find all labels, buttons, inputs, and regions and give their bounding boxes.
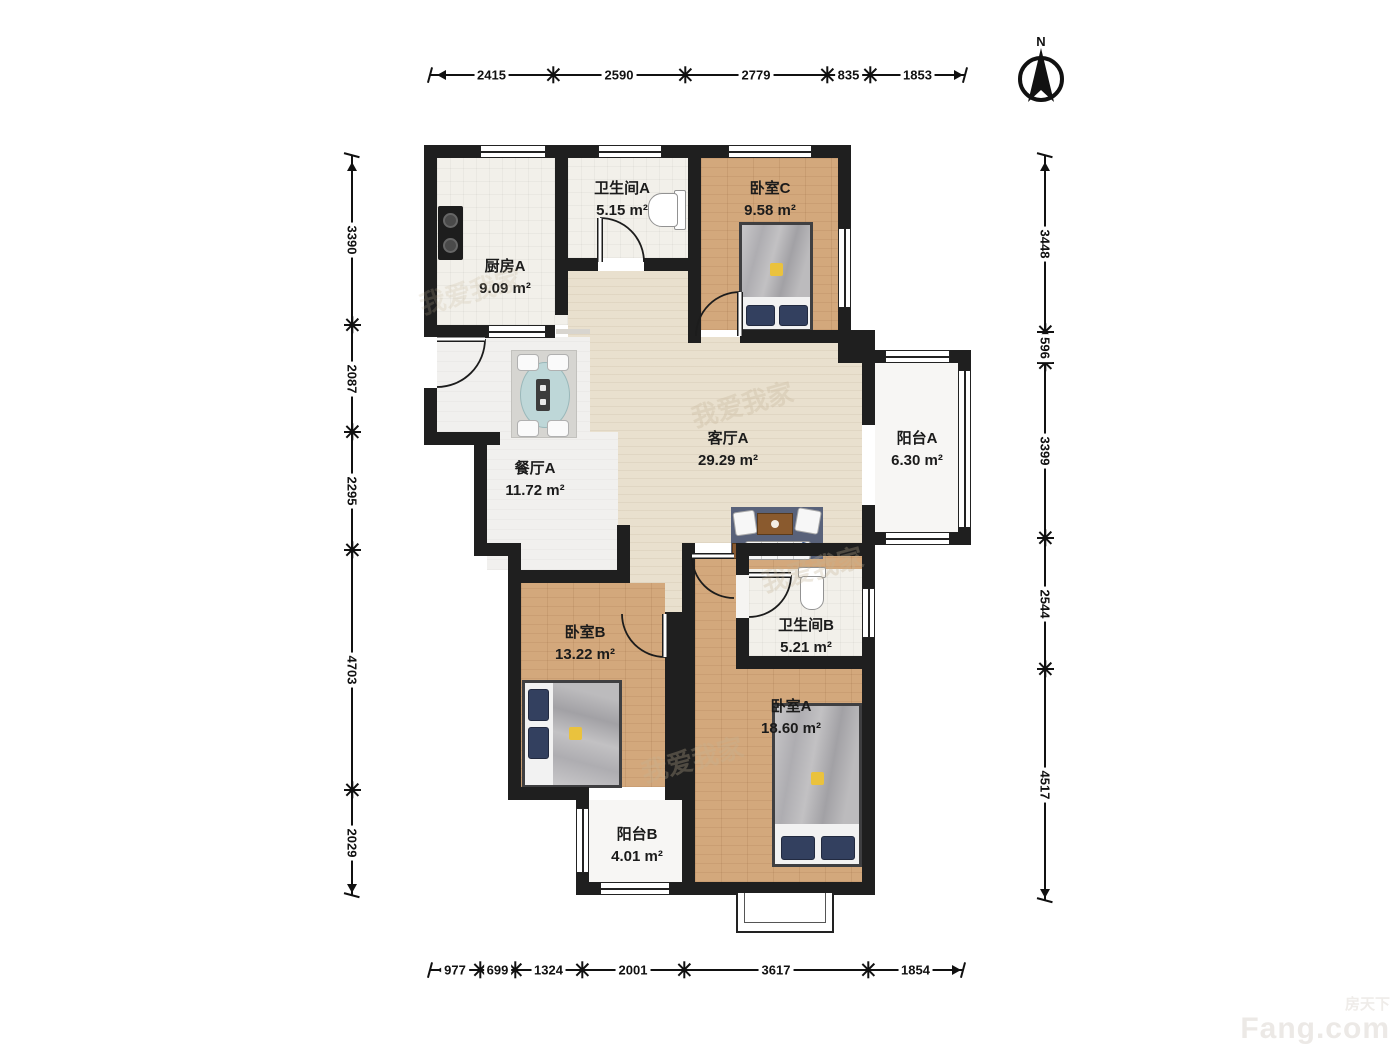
kitchen-doorway [556, 329, 590, 334]
wall-segment [424, 432, 500, 445]
wall-segment [862, 330, 875, 425]
dim-label: 977 [441, 963, 469, 978]
north-compass-icon: N [1006, 32, 1076, 112]
room-area: 9.58 m² [744, 200, 796, 222]
brand-watermark: 房天下 Fang.com [1240, 997, 1390, 1044]
room-label-balcony-a: 阳台A 6.30 m² [891, 428, 943, 472]
wall-segment [740, 330, 851, 343]
dimension-arrow [347, 884, 357, 898]
toilet-a [648, 188, 686, 230]
window [885, 350, 950, 363]
wall-segment [688, 330, 696, 343]
wall-segment [682, 543, 695, 895]
dim-label: 2001 [616, 963, 651, 978]
dim-label: 699 [484, 963, 512, 978]
wall-segment [474, 432, 487, 556]
bay-window [736, 893, 834, 933]
brand-watermark-cn: 房天下 [1240, 997, 1390, 1012]
dim-label: 835 [835, 68, 863, 83]
window [838, 228, 851, 308]
room-area: 11.72 m² [505, 480, 564, 502]
bed-c [739, 222, 813, 332]
dimension-arrow [954, 70, 968, 80]
dim-label: 3390 [345, 223, 360, 258]
dim-label: 1324 [531, 963, 566, 978]
wall-segment [508, 570, 630, 583]
dimension-arrow [347, 157, 357, 171]
room-area: 4.01 m² [611, 846, 663, 868]
compass-n-label: N [1036, 34, 1045, 49]
wall-segment [555, 258, 598, 271]
dim-label: 4517 [1038, 767, 1053, 802]
window [488, 325, 546, 338]
dim-label: 2295 [345, 474, 360, 509]
room-name: 阳台A [891, 428, 943, 450]
door-threshold-bath-b [736, 575, 749, 618]
room-area: 13.22 m² [555, 644, 615, 666]
coffee-table [757, 513, 793, 535]
wall-segment [736, 556, 749, 575]
dim-label: 3448 [1038, 226, 1053, 261]
room-name: 卫生间A [594, 178, 650, 200]
room-area: 5.21 m² [778, 637, 834, 659]
dimension-arrow [952, 965, 966, 975]
brand-watermark-en: Fang.com [1240, 1014, 1390, 1044]
dimension-arrow [432, 70, 446, 80]
window [862, 588, 875, 638]
dim-label: 2544 [1038, 586, 1053, 621]
floorplan-canvas: 卫生间A 5.15 m² 卧室C 9.58 m² 厨房A 9.09 m² 客厅A… [0, 0, 1400, 1050]
dimension-arrow [1040, 157, 1050, 171]
room-name: 阳台B [611, 824, 663, 846]
window [728, 145, 812, 158]
door-threshold-entry [424, 337, 437, 388]
dimension-line [430, 74, 965, 76]
room-label-bedroom-a: 卧室A 18.60 m² [761, 696, 821, 740]
dim-label: 1854 [898, 963, 933, 978]
window [576, 808, 589, 873]
room-label-bathroom-b: 卫生间B 5.21 m² [778, 615, 834, 659]
room-label-living: 客厅A 29.29 m² [698, 428, 758, 472]
window [598, 145, 662, 158]
wall-segment [736, 618, 749, 656]
wall-segment [862, 505, 875, 532]
room-name: 卫生间B [778, 615, 834, 637]
bed-b [522, 680, 622, 788]
dim-label: 2590 [602, 68, 637, 83]
wall-segment [555, 158, 568, 258]
room-label-balcony-b: 阳台B 4.01 m² [611, 824, 663, 868]
room-area: 5.15 m² [594, 200, 650, 222]
dim-label: 3617 [759, 963, 794, 978]
wall-segment [862, 525, 875, 895]
room-label-bathroom-a: 卫生间A 5.15 m² [594, 178, 650, 222]
dim-label: 3399 [1038, 433, 1053, 468]
room-label-bedroom-b: 卧室B 13.22 m² [555, 622, 615, 666]
room-area: 29.29 m² [698, 450, 758, 472]
dim-label: 596 [1038, 334, 1053, 362]
room-area: 18.60 m² [761, 718, 821, 740]
dim-label: 4703 [345, 653, 360, 688]
room-name: 卧室C [744, 178, 796, 200]
window [958, 370, 971, 528]
stove [438, 206, 463, 260]
dim-label: 2029 [345, 825, 360, 860]
window [480, 145, 546, 158]
dimension-arrow [1040, 889, 1050, 903]
dining-table [511, 350, 577, 438]
window [600, 882, 670, 895]
room-name: 餐厅A [505, 458, 564, 480]
dim-label: 2087 [345, 361, 360, 396]
window [885, 532, 950, 545]
room-area: 6.30 m² [891, 450, 943, 472]
room-name: 卧室B [555, 622, 615, 644]
dim-label: 1853 [900, 68, 935, 83]
room-label-dining: 餐厅A 11.72 m² [505, 458, 564, 502]
room-label-bedroom-c: 卧室C 9.58 m² [744, 178, 796, 222]
wall-segment [688, 158, 701, 343]
dim-label: 2779 [739, 68, 774, 83]
room-name: 卧室A [761, 696, 821, 718]
wall-segment [617, 525, 630, 583]
dim-label: 2415 [474, 68, 509, 83]
